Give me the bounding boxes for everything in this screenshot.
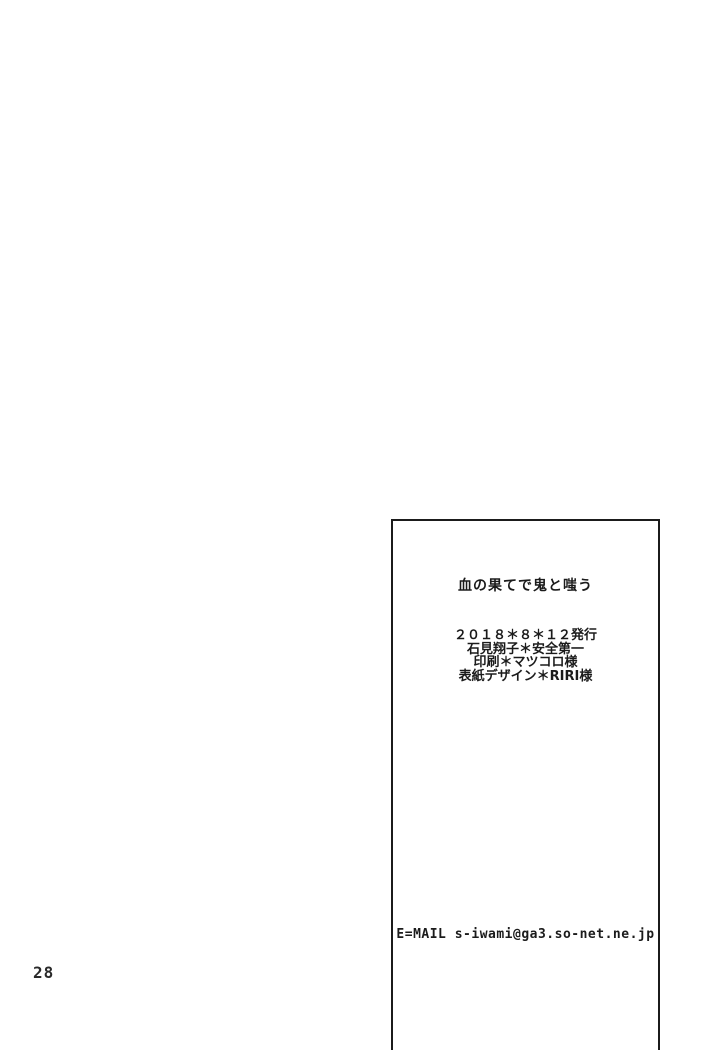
page-number: 28 <box>33 963 54 982</box>
cover-designer-line: 表紙デザイン＊RIRI様 <box>393 670 658 684</box>
credits-block: ２０１８＊８＊１２発行 石見翔子＊安全第一 印刷＊マツコロ様 表紙デザイン＊RI… <box>393 629 658 683</box>
book-title: 血の果てで鬼と嗤う <box>393 575 658 595</box>
author-circle-line: 石見翔子＊安全第一 <box>393 643 658 657</box>
colophon-box: 血の果てで鬼と嗤う ２０１８＊８＊１２発行 石見翔子＊安全第一 印刷＊マツコロ様… <box>391 519 660 1050</box>
email-contact: E=MAIL s-iwami@ga3.so-net.ne.jp <box>393 927 658 942</box>
publication-date-line: ２０１８＊８＊１２発行 <box>393 629 658 643</box>
printer-line: 印刷＊マツコロ様 <box>393 656 658 670</box>
scanned-colophon-page: 28 血の果てで鬼と嗤う ２０１８＊８＊１２発行 石見翔子＊安全第一 印刷＊マツ… <box>0 0 720 1050</box>
